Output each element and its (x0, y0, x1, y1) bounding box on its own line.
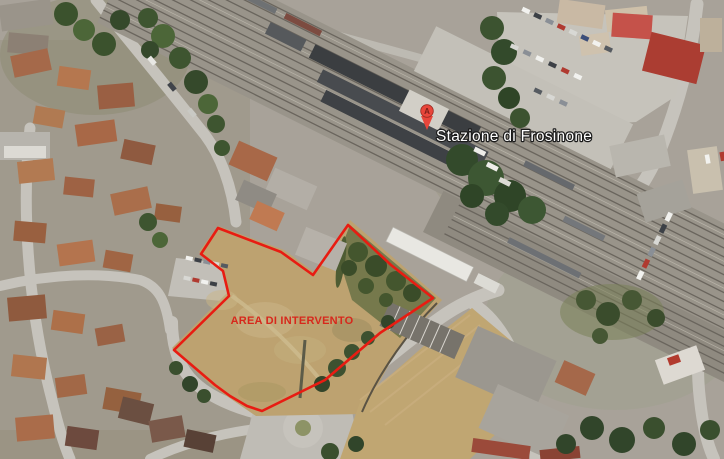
station-label[interactable]: Stazione di Frosinone (436, 128, 592, 145)
map-viewport[interactable]: AREA DI INTERVENTO A Stazione di Frosino… (0, 0, 724, 459)
area-label: AREA DI INTERVENTO (231, 315, 354, 327)
marker-letter: A (424, 107, 430, 116)
satellite-map[interactable]: AREA DI INTERVENTO A Stazione di Frosino… (0, 0, 724, 459)
